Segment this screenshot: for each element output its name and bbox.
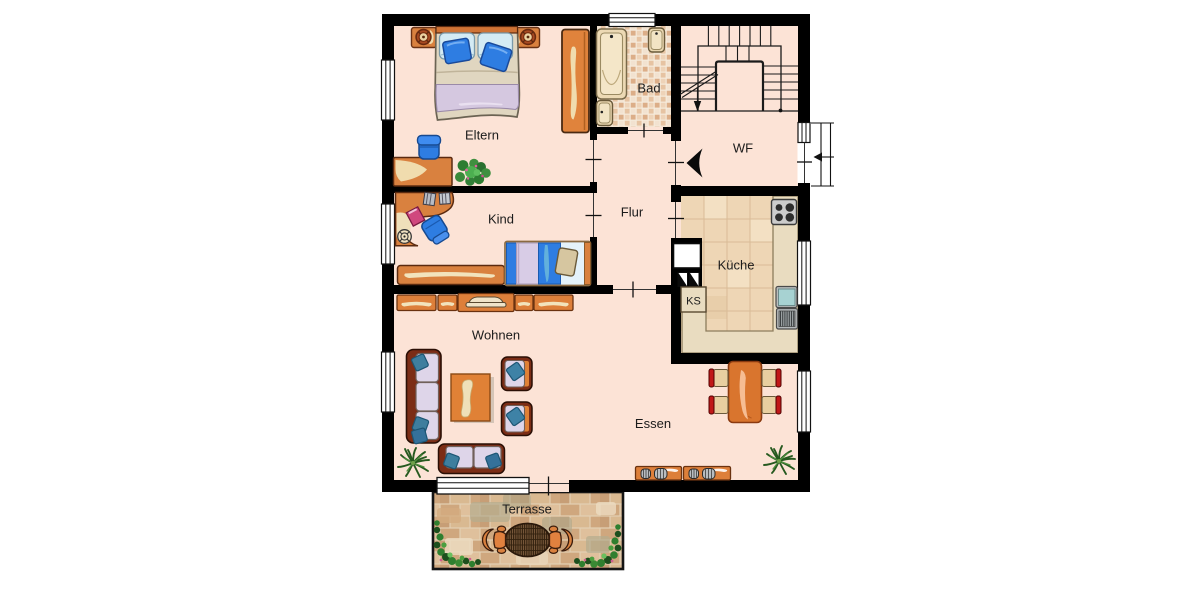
svg-text:Flur: Flur: [621, 205, 644, 220]
svg-text:Küche: Küche: [718, 258, 755, 273]
svg-text:Kind: Kind: [488, 212, 514, 227]
svg-text:Bad: Bad: [637, 81, 660, 96]
svg-text:Eltern: Eltern: [465, 128, 499, 143]
svg-text:KS: KS: [686, 296, 701, 308]
svg-text:Essen: Essen: [635, 416, 671, 431]
svg-text:Terrasse: Terrasse: [502, 502, 552, 517]
svg-text:WF: WF: [733, 141, 753, 156]
svg-text:Wohnen: Wohnen: [472, 328, 520, 343]
